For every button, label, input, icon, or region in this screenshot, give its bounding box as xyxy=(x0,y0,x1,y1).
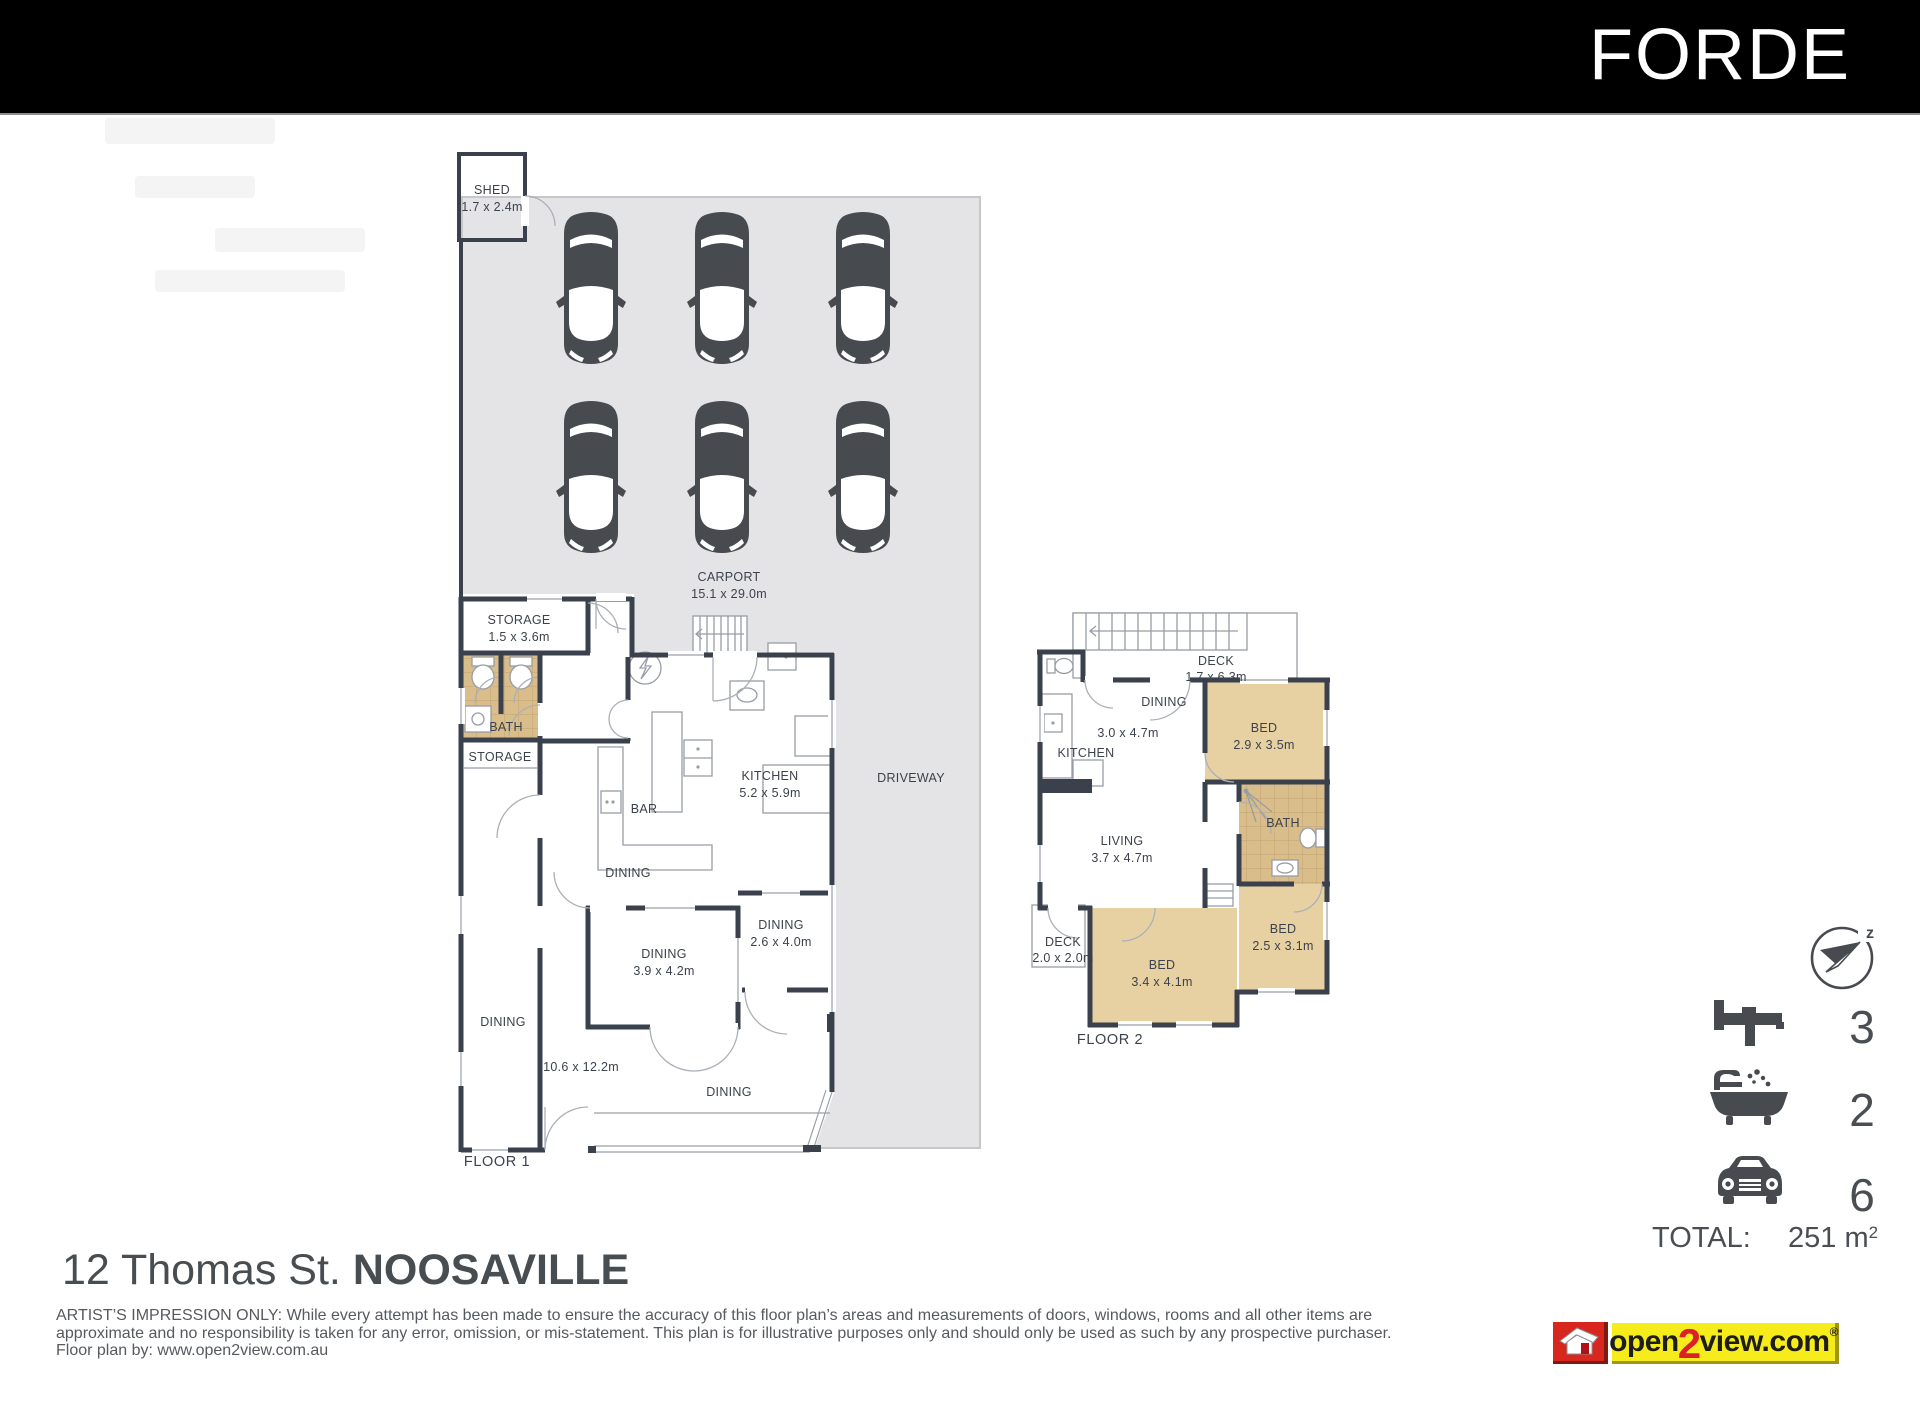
deck-top-dims: 1.7 x 6.3m xyxy=(1185,670,1246,684)
bed3-room xyxy=(1239,884,1327,992)
total-label: TOTAL: xyxy=(1652,1222,1751,1255)
address-suburb: NOOSAVILLE xyxy=(353,1246,629,1294)
dining-main-label: DINING xyxy=(641,947,687,961)
total-area-sup: 2 xyxy=(1869,1223,1878,1242)
kitchen1-dims: 5.2 x 5.9m xyxy=(739,786,800,800)
dining2-label: DINING xyxy=(1141,695,1187,709)
dining-top-label: DINING xyxy=(605,866,651,880)
floor1-title: FLOOR 1 xyxy=(464,1154,530,1170)
bed-count: 3 xyxy=(1832,1000,1892,1054)
kitchen2-label: KITCHEN xyxy=(1058,746,1115,760)
driveway-label: DRIVEWAY xyxy=(877,771,945,785)
disclaimer-line2: approximate and no responsibility is tak… xyxy=(56,1325,1392,1343)
floor2-plan: DECK 1.7 x 6.3m DINING 3.0 x 4.7m KITCHE… xyxy=(1032,613,1330,1048)
svg-text:z: z xyxy=(1866,925,1874,942)
dining-main-dims: 3.9 x 4.2m xyxy=(633,964,694,978)
floor1-plan: SHED 1.7 x 2.4m CARPORT 15.1 x 29.0m DRI… xyxy=(458,154,980,1170)
dining-left-label: DINING xyxy=(480,1015,526,1029)
shed-dims: 1.7 x 2.4m xyxy=(461,200,522,214)
bath1-label: BATH xyxy=(489,720,523,734)
bed2-label: BED xyxy=(1149,958,1176,972)
floor2-wall-chunk xyxy=(1038,779,1092,793)
dining-bottom-label: DINING xyxy=(706,1085,752,1099)
property-address: 12 Thomas St.NOOSAVILLE xyxy=(62,1246,629,1295)
floor2-wc xyxy=(1047,659,1073,674)
shed-label: SHED xyxy=(474,183,510,197)
floorplan-drawing: SHED 1.7 x 2.4m CARPORT 15.1 x 29.0m DRI… xyxy=(0,0,1920,1415)
floor1-overall-dims: 10.6 x 12.2m xyxy=(543,1060,619,1074)
logo-registered-mark: ® xyxy=(1830,1325,1838,1339)
carport-label: CARPORT xyxy=(698,570,761,584)
logo-text-open: open xyxy=(1609,1325,1679,1359)
bath-count: 2 xyxy=(1832,1083,1892,1137)
living-dims: 3.7 x 4.7m xyxy=(1091,851,1152,865)
logo-text-view: view.com xyxy=(1700,1325,1830,1359)
storage1-dims: 1.5 x 3.6m xyxy=(488,630,549,644)
car-count: 6 xyxy=(1832,1168,1892,1222)
total-area-value: 251 m xyxy=(1788,1222,1869,1254)
floorplan-page: FORDE xyxy=(0,0,1920,1415)
living-label: LIVING xyxy=(1101,834,1144,848)
linen-closet xyxy=(1207,884,1233,906)
floor2-deck-top xyxy=(1073,613,1297,678)
bath-icon xyxy=(1706,1068,1792,1128)
disclaimer-line3: Floor plan by: www.open2view.com.au xyxy=(56,1342,1392,1360)
bed2-dims: 3.4 x 4.1m xyxy=(1131,975,1192,989)
storage1-label: STORAGE xyxy=(488,613,551,627)
bath2-label: BATH xyxy=(1266,816,1300,830)
bed1-dims: 2.9 x 3.5m xyxy=(1233,738,1294,752)
floor1-stairs xyxy=(693,616,747,653)
floor2-bath-room xyxy=(1239,782,1327,884)
bar-label: BAR xyxy=(631,802,658,816)
floor2-title: FLOOR 2 xyxy=(1077,1032,1143,1048)
disclaimer-text: ARTIST’S IMPRESSION ONLY: While every at… xyxy=(56,1307,1392,1360)
deck-left-dims: 2.0 x 2.0m xyxy=(1032,951,1093,965)
compass-north-icon: z xyxy=(1802,920,1882,996)
disclaimer-line1: ARTIST’S IMPRESSION ONLY: While every at… xyxy=(56,1307,1392,1325)
total-area: 251 m2 xyxy=(1788,1222,1878,1255)
deck-left-label: DECK xyxy=(1045,935,1081,949)
open2view-house-icon xyxy=(1553,1322,1608,1364)
address-street: 12 Thomas St. xyxy=(62,1246,341,1294)
storage2-label: STORAGE xyxy=(469,750,532,764)
carport-dims: 15.1 x 29.0m xyxy=(691,587,767,601)
kitchen1-label: KITCHEN xyxy=(742,769,799,783)
deck-top-label: DECK xyxy=(1198,654,1234,668)
dining2-dims: 3.0 x 4.7m xyxy=(1097,726,1158,740)
logo-text-2: 2 xyxy=(1678,1320,1701,1368)
bed-icon xyxy=(1712,1000,1792,1048)
open2view-logo: open2view.com® xyxy=(1612,1323,1839,1364)
car-icon xyxy=(1714,1154,1786,1206)
dining-right-dims: 2.6 x 4.0m xyxy=(750,935,811,949)
bed1-label: BED xyxy=(1251,721,1278,735)
bed3-dims: 2.5 x 3.1m xyxy=(1252,939,1313,953)
dining-right-label: DINING xyxy=(758,918,804,932)
bed3-label: BED xyxy=(1270,922,1297,936)
floor2-kitchen-fixtures xyxy=(1042,694,1103,786)
